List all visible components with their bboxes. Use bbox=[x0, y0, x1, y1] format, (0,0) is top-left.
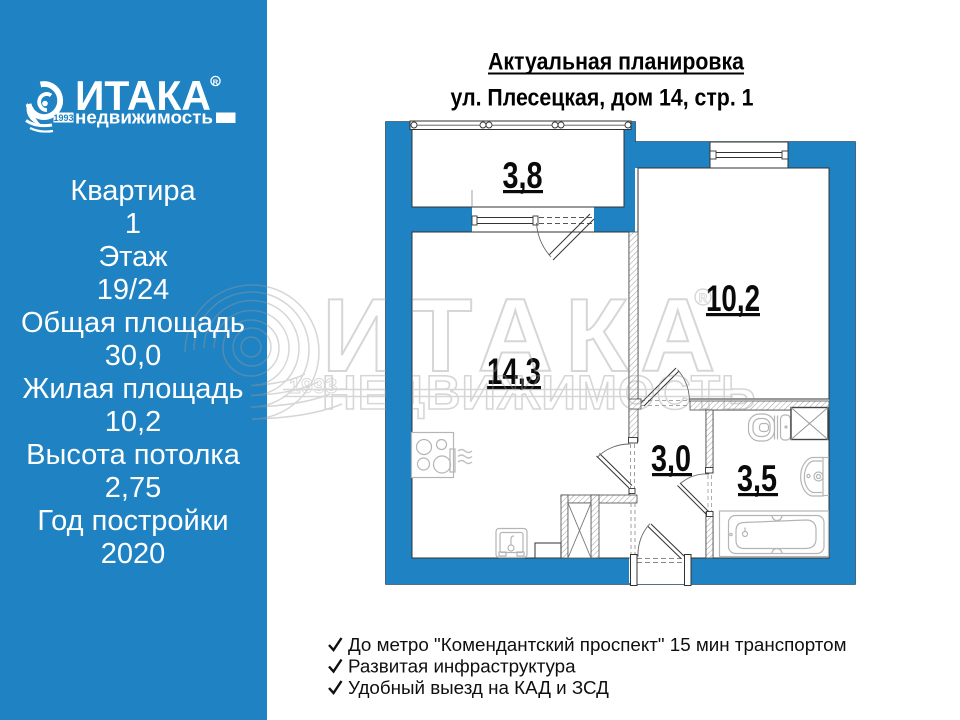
svg-text:3,0: 3,0 bbox=[651, 438, 691, 479]
svg-text:недвижимость: недвижимость bbox=[75, 107, 213, 128]
svg-text:НЕДВИЖИМОСТЬ: НЕДВИЖИМОСТЬ bbox=[322, 367, 757, 420]
svg-text:1993: 1993 bbox=[53, 113, 73, 123]
svg-text:3,8: 3,8 bbox=[503, 155, 543, 196]
svg-text:30,0: 30,0 bbox=[105, 340, 161, 372]
svg-text:2,75: 2,75 bbox=[105, 472, 161, 504]
svg-text:R: R bbox=[213, 78, 219, 87]
svg-text:ул. Плесецкая, дом 14, стр. 1: ул. Плесецкая, дом 14, стр. 1 bbox=[451, 85, 754, 112]
svg-text:Год постройки: Год постройки bbox=[37, 505, 228, 537]
svg-text:Удобный выезд на КАД и ЗСД: Удобный выезд на КАД и ЗСД bbox=[348, 677, 609, 698]
svg-text:Квартира: Квартира bbox=[70, 175, 196, 207]
svg-text:Актуальная планировка: Актуальная планировка bbox=[488, 49, 745, 76]
svg-text:10,2: 10,2 bbox=[105, 406, 161, 438]
svg-text:Высота потолка: Высота потолка bbox=[26, 439, 241, 471]
svg-text:R: R bbox=[699, 291, 708, 305]
svg-text:Общая площадь: Общая площадь bbox=[21, 307, 245, 339]
svg-text:Жилая площадь: Жилая площадь bbox=[23, 373, 244, 405]
svg-text:19/24: 19/24 bbox=[97, 274, 170, 306]
svg-text:1: 1 bbox=[125, 208, 141, 240]
svg-text:Развитая инфраструктура: Развитая инфраструктура bbox=[348, 656, 576, 677]
svg-text:До метро "Комендантский проспе: До метро "Комендантский проспект" 15 мин… bbox=[348, 634, 847, 655]
svg-text:3,5: 3,5 bbox=[737, 458, 777, 499]
svg-text:Этаж: Этаж bbox=[98, 241, 168, 273]
svg-text:2020: 2020 bbox=[101, 538, 166, 570]
